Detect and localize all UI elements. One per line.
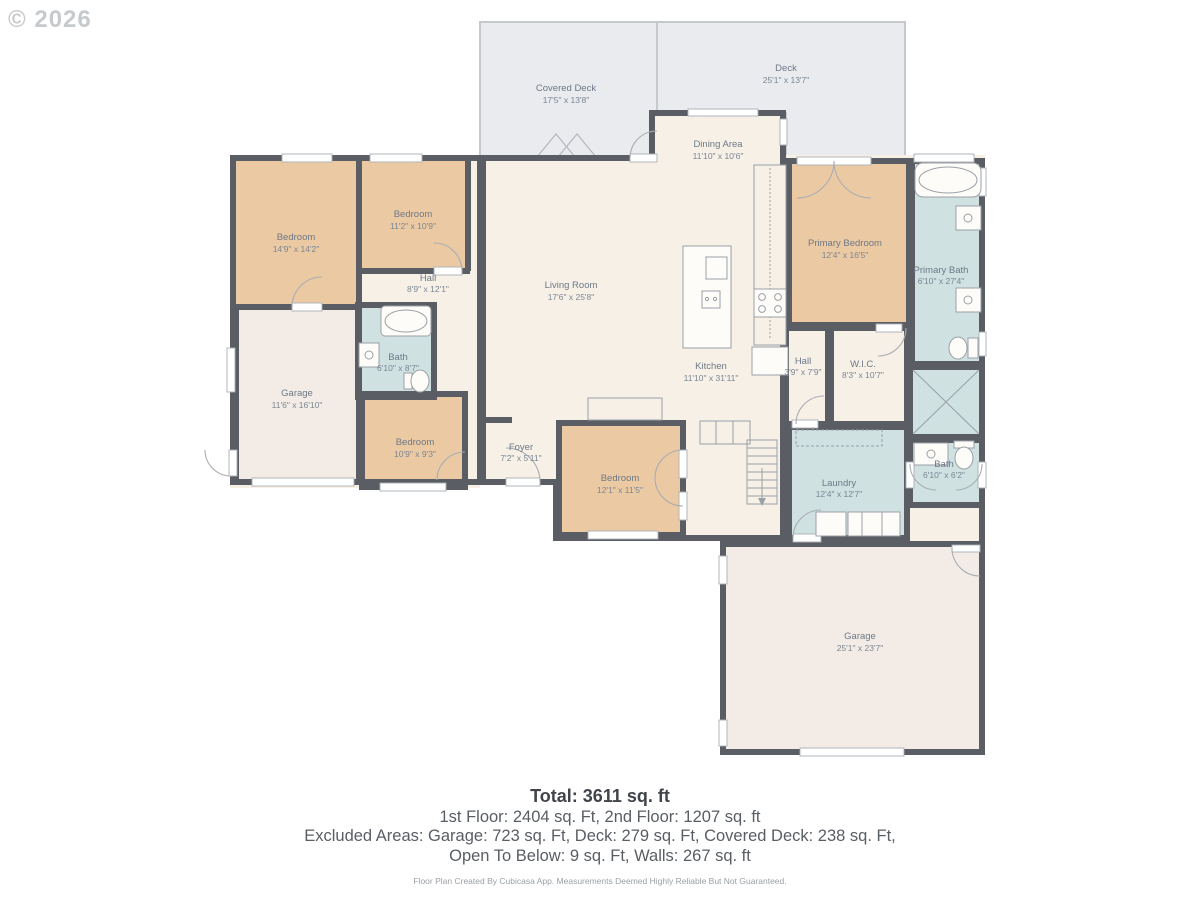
door-gap xyxy=(679,450,687,478)
room-primary-bath: Primary Bath 6'10" x 27'4" xyxy=(914,265,969,286)
island-sink xyxy=(706,257,727,279)
window xyxy=(688,109,758,116)
room-label: Foyer xyxy=(509,442,533,453)
room-label: Living Room xyxy=(545,280,598,291)
door-gap xyxy=(952,545,980,552)
room-label: Bath xyxy=(388,352,408,363)
room-dims: 3'9" x 7'9" xyxy=(784,367,821,377)
floor-plan-page: © 2026 xyxy=(0,0,1200,900)
cooktop-burner-icon xyxy=(705,297,708,300)
refrigerator xyxy=(752,347,788,375)
window xyxy=(780,119,787,145)
door-gap xyxy=(229,450,237,476)
window xyxy=(370,154,422,162)
room-dims: 6'10" x 8'7" xyxy=(377,363,419,373)
sink xyxy=(956,288,981,312)
door-gap xyxy=(292,303,322,311)
garage1-door-opening xyxy=(252,478,354,486)
washer xyxy=(816,512,846,536)
room-dims: 25'1" x 13'7" xyxy=(763,75,810,85)
room-label: W.I.C. xyxy=(850,359,876,370)
cooktop-burner-icon xyxy=(713,297,716,300)
garage2-door-opening xyxy=(800,748,904,756)
window xyxy=(588,531,658,539)
room-label: Covered Deck xyxy=(536,83,596,94)
room-dims: 6'10" x 27'4" xyxy=(918,276,965,286)
toilet xyxy=(955,447,973,469)
room-dims: 11'10" x 10'6" xyxy=(693,151,744,161)
disclaimer-text: Floor Plan Created By Cubicasa App. Meas… xyxy=(0,876,1200,886)
excluded-areas-line1: Excluded Areas: Garage: 723 sq. Ft, Deck… xyxy=(0,827,1200,846)
room-label: Dining Area xyxy=(693,139,743,150)
floor-areas: 1st Floor: 2404 sq. Ft, 2nd Floor: 1207 … xyxy=(0,808,1200,827)
area-summary: Total: 3611 sq. ft 1st Floor: 2404 sq. F… xyxy=(0,786,1200,886)
window xyxy=(719,556,727,584)
room-dims: 8'9" x 12'1" xyxy=(407,284,449,294)
room-dims: 17'6" x 25'8" xyxy=(548,292,595,302)
room-dims: 11'10" x 31'11" xyxy=(684,373,739,383)
excluded-areas-line2: Open To Below: 9 sq. Ft, Walls: 267 sq. … xyxy=(0,847,1200,866)
room-dims: 25'1" x 23'7" xyxy=(837,643,884,653)
sink xyxy=(359,343,379,367)
window xyxy=(914,154,974,162)
door-gap xyxy=(876,324,902,332)
window xyxy=(282,154,332,162)
room-label: Garage xyxy=(844,631,876,642)
room-dims: 14'9" x 14'2" xyxy=(273,244,320,254)
toilet xyxy=(411,370,429,392)
room-label: Deck xyxy=(775,63,797,74)
room-label: Kitchen xyxy=(695,361,727,372)
room-dims: 11'2" x 10'9" xyxy=(390,221,436,231)
bathtub xyxy=(915,163,981,197)
room-dims: 7'2" x 5'11" xyxy=(500,453,541,463)
room-label: Bedroom xyxy=(394,209,433,220)
window xyxy=(227,348,235,392)
dryer xyxy=(848,512,900,536)
door-gap xyxy=(506,478,540,486)
copyright-watermark: © 2026 xyxy=(8,6,92,34)
toilet xyxy=(949,337,967,359)
room-dims: 12'4" x 12'7" xyxy=(816,489,863,499)
window xyxy=(979,332,986,356)
room-label: Primary Bedroom xyxy=(808,238,882,249)
room-dims: 6'10" x 6'2" xyxy=(923,470,965,480)
room-dims: 11'6" x 16'10" xyxy=(272,400,323,410)
room-laundry: Laundry 12'4" x 12'7" xyxy=(816,478,863,499)
total-area: Total: 3611 sq. ft xyxy=(0,786,1200,808)
stove xyxy=(754,289,786,317)
toilet-tank-icon xyxy=(968,338,978,358)
door-gap xyxy=(630,154,657,162)
room-dims: 10'9" x 9'3" xyxy=(394,449,436,459)
room-label: Bedroom xyxy=(601,473,640,484)
room-label: Bedroom xyxy=(277,232,316,243)
room-label: Laundry xyxy=(822,478,857,489)
room-dims: 8'3" x 10'7" xyxy=(842,370,884,380)
floor-plan-svg: Covered Deck 17'5" x 13'8" Deck 25'1" x … xyxy=(0,0,1200,782)
door-gap xyxy=(434,267,462,275)
room-label: Hall xyxy=(795,356,811,367)
room-label: Hall xyxy=(420,273,436,284)
room-label: Bedroom xyxy=(396,437,435,448)
sink xyxy=(956,206,981,230)
room-label: Bath xyxy=(934,459,954,470)
window xyxy=(380,483,446,491)
island-cooktop xyxy=(702,291,720,308)
door-arc xyxy=(205,450,231,476)
room-dims: 12'4" x 16'5" xyxy=(822,250,869,260)
room-dims: 17'5" x 13'8" xyxy=(543,95,590,105)
room-label: Garage xyxy=(281,388,313,399)
room-label: Primary Bath xyxy=(914,265,969,276)
window xyxy=(719,720,727,746)
room-dims: 12'1" x 11'5" xyxy=(597,485,643,495)
